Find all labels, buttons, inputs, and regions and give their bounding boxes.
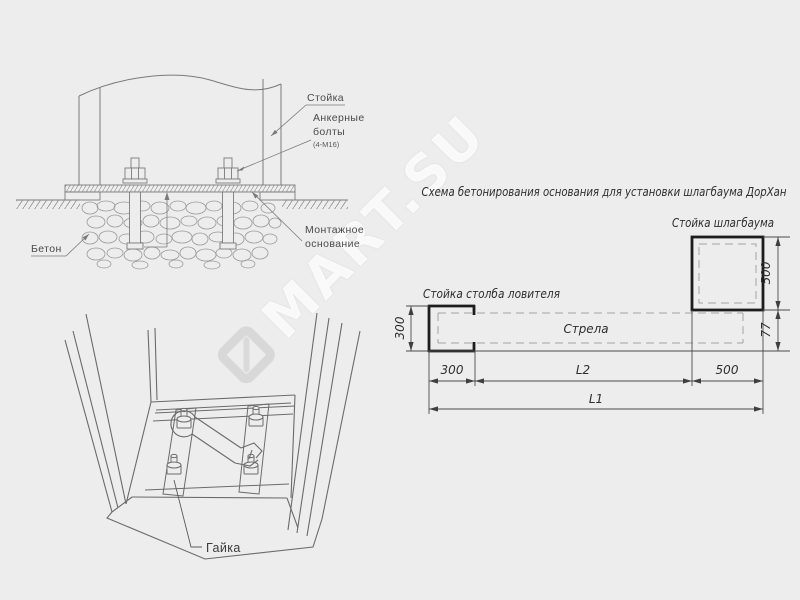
ground-hatch-right xyxy=(282,200,348,209)
catcher-post-square xyxy=(428,305,475,352)
label-concrete: Бетон xyxy=(31,234,89,256)
anchor-bolt-left xyxy=(123,158,147,249)
dim-mid-span: L2 xyxy=(576,363,590,377)
anchor-bolts-label-2: болты xyxy=(313,126,345,138)
plan-drawing: Схема бетонирования основания для устано… xyxy=(390,160,800,430)
label-anchor-bolts: Анкерные болты (4-М16) xyxy=(237,112,365,171)
catcher-post-label: Стойка столба ловителя xyxy=(423,286,560,301)
concrete-label: Бетон xyxy=(31,243,62,255)
nut-label: Гайка xyxy=(206,541,241,555)
cross-section-drawing: Стойка Анкерные болты (4-М16) Монтажное … xyxy=(0,40,400,300)
anchor-bolts-spec: (4-М16) xyxy=(313,140,340,149)
dim-total-span: L1 xyxy=(589,392,603,406)
bolt-upper-right xyxy=(249,406,263,426)
post-body xyxy=(79,75,281,185)
dim-catcher-height: 300 xyxy=(393,316,407,339)
mounting-base-label-2: основание xyxy=(305,238,360,250)
post-label: Стойка xyxy=(307,92,344,104)
barrier-post-square xyxy=(692,237,763,310)
embedment-depth-line xyxy=(144,192,170,247)
barrier-post-label: Стойка шлагбаума xyxy=(672,215,774,230)
ground-hatch-left xyxy=(16,200,80,209)
drawing-sheet: MART.SU xyxy=(0,0,800,600)
perspective-drawing: Гайка xyxy=(55,300,375,580)
base-plate xyxy=(65,185,295,200)
break-wave-line xyxy=(79,75,281,96)
anchor-bolts-label-1: Анкерные xyxy=(313,112,365,124)
concrete-stones xyxy=(82,201,281,269)
dim-boom-offset: 77 xyxy=(759,322,773,338)
dim-catcher-width: 300 xyxy=(441,363,464,377)
post-walls xyxy=(65,313,360,559)
mounting-base-label-1: Монтажное xyxy=(305,224,364,236)
anchor-bolt-right xyxy=(216,158,240,249)
boom-label: Стрела xyxy=(564,321,609,336)
mounting-plate xyxy=(145,404,295,496)
dim-barrier-width: 500 xyxy=(716,363,739,377)
dim-barrier-height: 500 xyxy=(759,261,773,284)
plan-title: Схема бетонирования основания для устано… xyxy=(422,184,787,199)
